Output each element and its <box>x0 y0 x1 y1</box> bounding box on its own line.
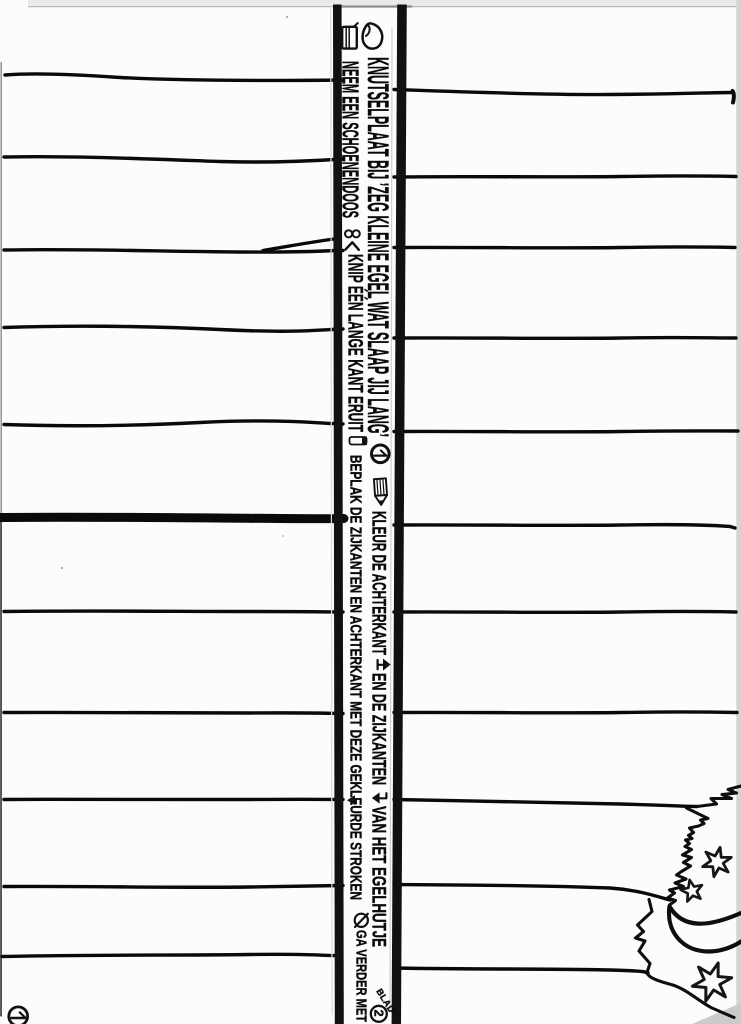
svg-text:GA VERDER MET: GA VERDER MET <box>353 930 369 1022</box>
svg-text:KLEUR DE ACHTERKANT: KLEUR DE ACHTERKANT <box>368 511 389 655</box>
svg-text:EN DE ZIJKANTEN: EN DE ZIJKANTEN <box>368 673 389 785</box>
svg-text:2: 2 <box>372 1010 386 1017</box>
svg-text:VAN HET EGELHUTJE: VAN HET EGELHUTJE <box>368 806 389 947</box>
svg-text:KNUTSELPLAAT BIJ ’ZEG KLEINE E: KNUTSELPLAAT BIJ ’ZEG KLEINE EGEL WAT SL… <box>361 57 394 437</box>
svg-text:BEPLAK DE ZIJKANTEN EN ACHTERK: BEPLAK DE ZIJKANTEN EN ACHTERKANT MET DE… <box>347 455 364 900</box>
svg-text:NEEM EEN SCHOENENDOOS: NEEM EEN SCHOENENDOOS <box>338 61 364 218</box>
